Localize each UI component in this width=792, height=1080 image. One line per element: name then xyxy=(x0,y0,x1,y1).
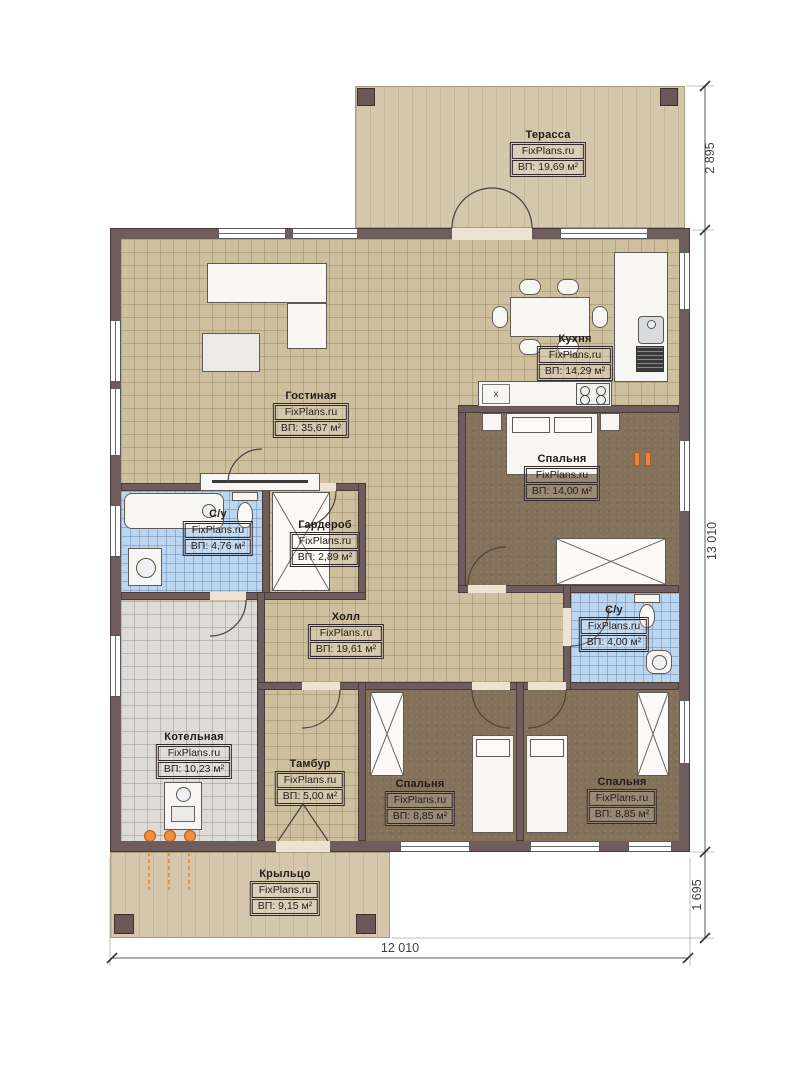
wall xyxy=(262,483,270,600)
pillow xyxy=(512,417,550,433)
room-name: Гостиная xyxy=(273,390,349,402)
room-area: ВП: 8,85 м² xyxy=(387,809,453,824)
toilet-tank xyxy=(232,492,258,501)
wall xyxy=(516,682,524,841)
room-area: ВП: 10,23 м² xyxy=(158,762,230,777)
room-area: ВП: 14,00 м² xyxy=(526,484,598,499)
door-opening-bedroom-left xyxy=(472,682,510,690)
room-name: Кухня xyxy=(537,333,613,345)
brand-watermark: FixPlans.ru xyxy=(387,793,453,808)
pillow xyxy=(554,417,592,433)
sofa-chaise xyxy=(287,303,327,349)
sofa xyxy=(207,263,327,303)
room-label-bedroom-main: Спальня FixPlans.ru ВП: 14,00 м² xyxy=(524,453,600,501)
nightstand xyxy=(482,413,502,431)
boiler-panel xyxy=(171,806,195,822)
brand-watermark: FixPlans.ru xyxy=(581,619,647,634)
gas-riser-icon xyxy=(144,830,156,842)
floor-plan: x xyxy=(0,0,792,1080)
dimension-terrace-depth: 2 895 xyxy=(703,142,717,173)
room-area: ВП: 4,76 м² xyxy=(185,539,251,554)
room-label-porch: Крыльцо FixPlans.ru ВП: 9,15 м² xyxy=(250,868,320,916)
brand-watermark: FixPlans.ru xyxy=(539,348,611,363)
porch-post xyxy=(114,914,134,934)
brand-watermark: FixPlans.ru xyxy=(310,626,382,641)
window xyxy=(679,700,690,764)
room-label-boiler: Котельная FixPlans.ru ВП: 10,23 м² xyxy=(156,731,232,779)
gas-riser-icon xyxy=(184,830,196,842)
window xyxy=(110,320,121,382)
window xyxy=(292,228,358,239)
room-area: ВП: 19,69 м² xyxy=(512,160,584,175)
room-area: ВП: 19,61 м² xyxy=(310,642,382,657)
dimension-house-front: 12 010 xyxy=(381,941,419,955)
brand-watermark: FixPlans.ru xyxy=(589,791,655,806)
brand-watermark: FixPlans.ru xyxy=(526,468,598,483)
brand-watermark: FixPlans.ru xyxy=(512,144,584,159)
chair xyxy=(592,306,608,328)
pillow xyxy=(476,739,510,757)
dimension-porch-depth: 1 695 xyxy=(690,879,704,910)
room-name: С/у xyxy=(579,604,649,616)
door-opening-terrace xyxy=(452,228,532,240)
porch-post xyxy=(356,914,376,934)
burner-icon xyxy=(596,395,606,405)
wall xyxy=(257,592,265,841)
window xyxy=(679,440,690,512)
room-label-bedroom-left: Спальня FixPlans.ru ВП: 8,85 м² xyxy=(385,778,455,826)
chair xyxy=(519,279,541,295)
cabinet-mark: x xyxy=(482,384,510,404)
tv-icon xyxy=(212,480,308,483)
nightstand xyxy=(600,413,620,431)
window xyxy=(530,841,600,852)
washer-drum-icon xyxy=(136,558,156,578)
room-name: Крыльцо xyxy=(250,868,320,880)
toilet-tank xyxy=(634,594,660,603)
room-area: ВП: 4,00 м² xyxy=(581,635,647,650)
window xyxy=(110,388,121,456)
room-label-vestibule: Тамбур FixPlans.ru ВП: 5,00 м² xyxy=(275,758,345,806)
gas-riser-icon xyxy=(164,830,176,842)
entry-door-opening xyxy=(276,841,330,852)
boiler-dial-icon xyxy=(176,787,191,802)
room-label-terrace: Терасса FixPlans.ru ВП: 19,69 м² xyxy=(510,129,586,177)
room-area: ВП: 35,67 м² xyxy=(275,421,347,436)
wardrobe-x xyxy=(637,692,669,776)
room-area: ВП: 5,00 м² xyxy=(277,789,343,804)
brand-watermark: FixPlans.ru xyxy=(158,746,230,761)
room-area: ВП: 2,89 м² xyxy=(292,550,358,565)
window xyxy=(110,505,121,557)
room-label-bathroom-small: С/у FixPlans.ru ВП: 4,00 м² xyxy=(579,604,649,652)
door-opening-boiler xyxy=(210,592,246,600)
room-name: Спальня xyxy=(524,453,600,465)
stove xyxy=(576,383,610,405)
dimension-house-side: 13 010 xyxy=(705,522,719,560)
window xyxy=(218,228,286,239)
window xyxy=(400,841,470,852)
room-name: Холл xyxy=(308,611,384,623)
window xyxy=(679,252,690,310)
chair xyxy=(557,279,579,295)
brand-watermark: FixPlans.ru xyxy=(292,534,358,549)
pillow xyxy=(530,739,564,757)
room-name: Котельная xyxy=(156,731,232,743)
dining-table xyxy=(510,297,590,337)
chair xyxy=(492,306,508,328)
room-label-wardrobe: Гардероб FixPlans.ru ВП: 2,89 м² xyxy=(290,519,360,567)
terrace-post xyxy=(660,88,678,106)
burner-icon xyxy=(580,395,590,405)
terrace-post xyxy=(357,88,375,106)
wardrobe-x xyxy=(370,692,404,776)
sconce-icon xyxy=(634,452,640,466)
wall xyxy=(458,405,466,593)
wardrobe-x xyxy=(556,538,666,585)
room-area: ВП: 14,29 м² xyxy=(539,364,611,379)
room-name: Тамбур xyxy=(275,758,345,770)
room-name: Спальня xyxy=(587,776,657,788)
room-name: Спальня xyxy=(385,778,455,790)
brand-watermark: FixPlans.ru xyxy=(185,523,251,538)
room-label-bedroom-right: Спальня FixPlans.ru ВП: 8,85 м² xyxy=(587,776,657,824)
fridge xyxy=(636,346,664,372)
room-area: ВП: 8,85 м² xyxy=(589,807,655,822)
window xyxy=(560,228,648,239)
room-name: С/у xyxy=(183,508,253,520)
window xyxy=(628,841,672,852)
coffee-table xyxy=(202,333,260,372)
room-name: Гардероб xyxy=(290,519,360,531)
door-opening-bedroom-main xyxy=(468,585,506,593)
room-label-kitchen: Кухня FixPlans.ru ВП: 14,29 м² xyxy=(537,333,613,381)
brand-watermark: FixPlans.ru xyxy=(277,773,343,788)
sink-bowl-icon xyxy=(652,655,667,670)
door-opening-vestibule xyxy=(302,682,340,690)
window xyxy=(110,635,121,697)
sconce-icon xyxy=(645,452,651,466)
room-area: ВП: 9,15 м² xyxy=(252,899,318,914)
faucet-icon xyxy=(647,320,656,329)
room-label-bathroom-main: С/у FixPlans.ru ВП: 4,76 м² xyxy=(183,508,253,556)
brand-watermark: FixPlans.ru xyxy=(252,883,318,898)
wall xyxy=(358,682,366,841)
door-opening-bathroom-small xyxy=(563,608,571,646)
brand-watermark: FixPlans.ru xyxy=(275,405,347,420)
room-name: Терасса xyxy=(510,129,586,141)
door-opening-bedroom-right xyxy=(528,682,566,690)
room-label-hall: Холл FixPlans.ru ВП: 19,61 м² xyxy=(308,611,384,659)
room-label-living: Гостиная FixPlans.ru ВП: 35,67 м² xyxy=(273,390,349,438)
